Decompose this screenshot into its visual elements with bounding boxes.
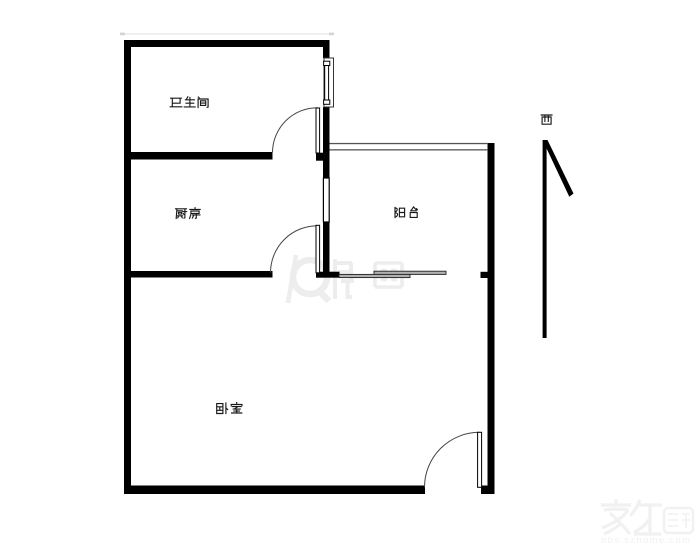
svg-text:bbs.szhome.com: bbs.szhome.com bbox=[601, 535, 690, 546]
